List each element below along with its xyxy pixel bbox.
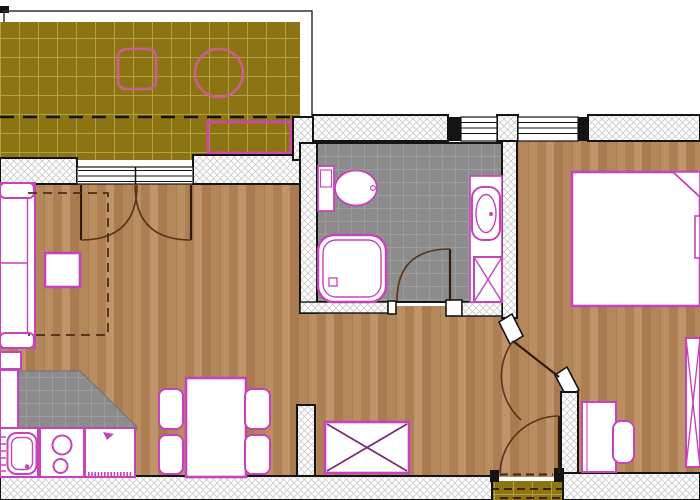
terrace-wall-right [193, 155, 303, 184]
entry-jamb-left [490, 470, 499, 482]
bathroom-bottom-wall-right [462, 302, 502, 316]
hall-bedroom-wall [561, 392, 578, 474]
dining-chair-1 [159, 389, 183, 429]
bottom-wall-right [563, 473, 700, 500]
shower [318, 235, 386, 302]
coffee-table [45, 253, 80, 287]
toilet-flush [371, 186, 376, 191]
floor-plan-drawing [0, 0, 700, 500]
terrace-french-window [77, 167, 193, 184]
kitchen-stove [40, 428, 84, 477]
side-table [0, 352, 21, 369]
bedroom-window [518, 117, 578, 141]
double-bed [572, 172, 700, 306]
desk [582, 402, 616, 472]
nightstand-cut [695, 216, 700, 258]
dining-chair-4 [245, 435, 270, 474]
terrace-wall-left [0, 158, 77, 184]
dining-chair-3 [245, 389, 270, 429]
bathroom-window [461, 117, 497, 141]
storage-chest [325, 422, 409, 473]
kitchen-sink-unit [0, 428, 38, 477]
desk-chair [613, 421, 634, 463]
kitchen-side-counter [0, 370, 18, 428]
sofa [0, 183, 35, 348]
bottom-wall-left [0, 476, 492, 500]
sink-drain [25, 464, 29, 468]
bathroom-door-jamb-left [388, 301, 396, 314]
dining-table [186, 378, 246, 477]
basin-faucet [489, 212, 493, 216]
bathroom-left-wall [300, 143, 317, 313]
top-wall-pier [497, 115, 518, 141]
living-room-wall-stub [297, 405, 315, 477]
terrace-floor [0, 22, 300, 160]
terrace [0, 6, 312, 160]
bathroom-bottom-wall-left [300, 302, 388, 313]
top-wall-over-bathroom [313, 115, 448, 141]
floor-plan-page [0, 0, 700, 500]
shower-drain [329, 278, 337, 286]
dining-chair-2 [159, 435, 183, 474]
bathroom-door-jamb-right [446, 300, 462, 316]
kitchen-base-cabinet [85, 428, 135, 477]
window-pier-2 [578, 117, 588, 141]
top-wall-over-bedroom [588, 115, 700, 141]
wardrobe [686, 338, 700, 467]
bathroom-bedroom-divider-wall [502, 141, 517, 318]
window-pier-1 [448, 117, 461, 141]
